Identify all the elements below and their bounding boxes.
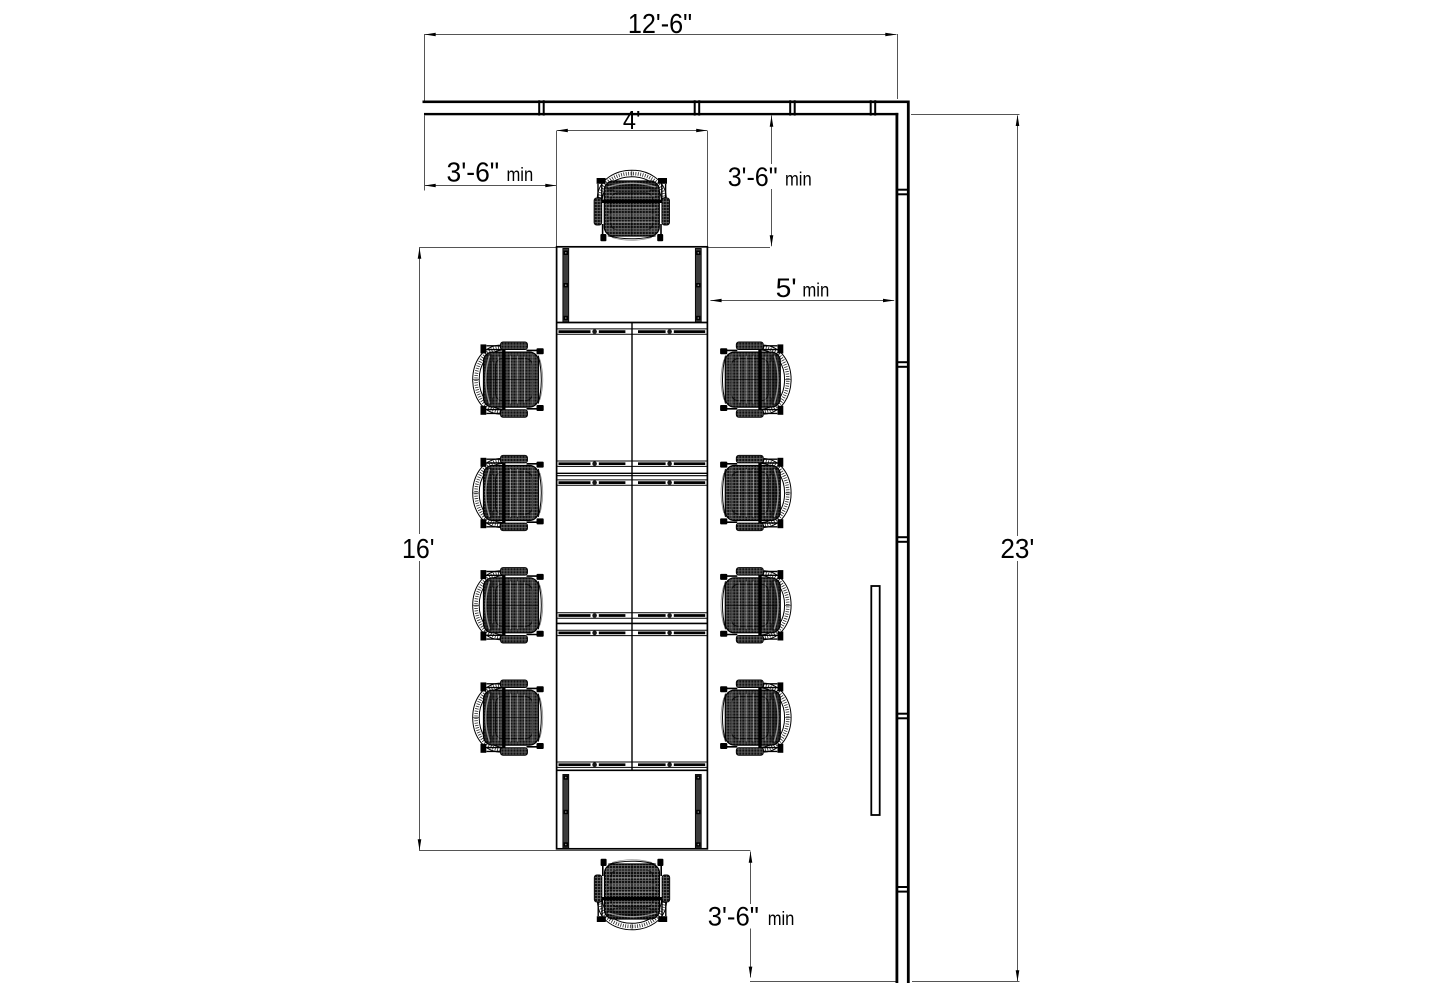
svg-text:3'-6": 3'-6" (708, 902, 759, 932)
svg-text:5': 5' (776, 273, 797, 303)
svg-text:min: min (802, 281, 829, 302)
svg-text:4': 4' (623, 105, 641, 135)
svg-text:min: min (768, 909, 795, 930)
svg-text:16': 16' (402, 533, 435, 564)
svg-text:min: min (507, 165, 534, 186)
svg-text:min: min (785, 170, 812, 191)
svg-text:12'-6": 12'-6" (628, 8, 692, 39)
svg-text:23': 23' (1000, 533, 1034, 564)
svg-text:3'-6": 3'-6" (728, 162, 778, 192)
svg-text:3'-6": 3'-6" (447, 157, 500, 188)
